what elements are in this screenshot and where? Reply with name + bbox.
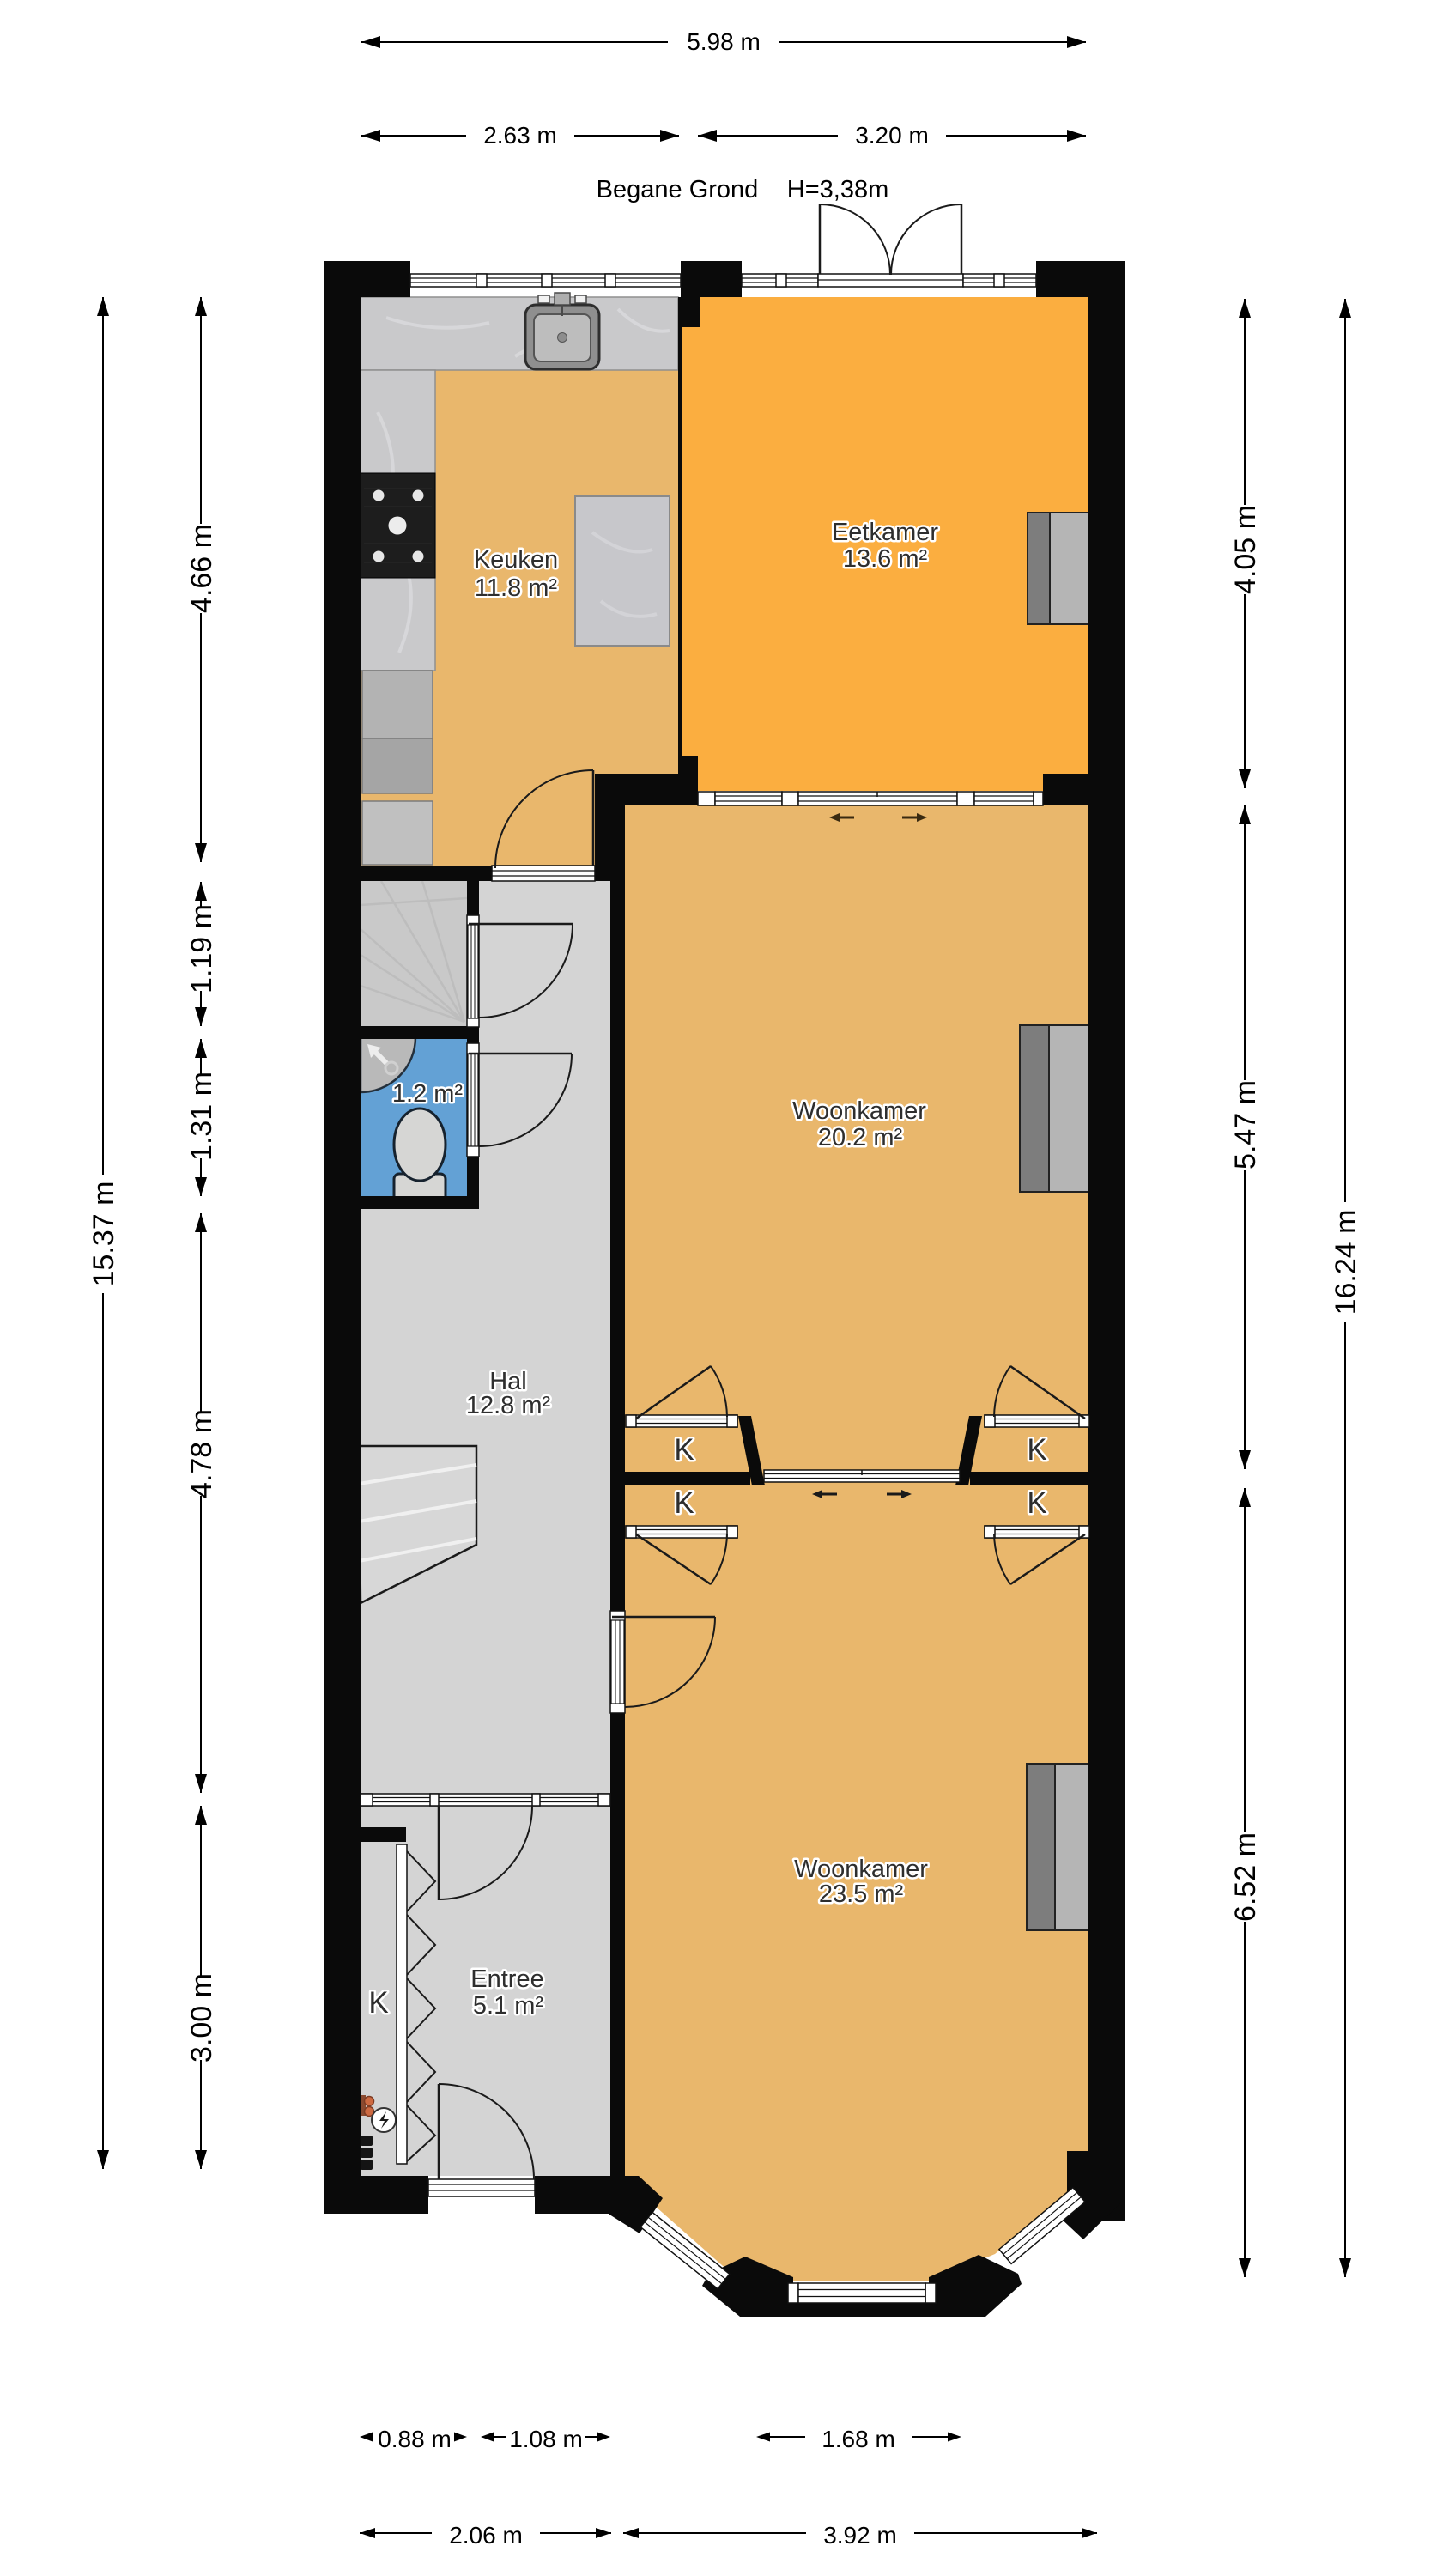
svg-text:3.00 m: 3.00 m: [185, 1973, 218, 2063]
svg-text:20.2 m²: 20.2 m²: [818, 1124, 903, 1151]
svg-text:K: K: [1027, 1433, 1046, 1467]
svg-text:K: K: [1027, 1486, 1046, 1520]
svg-text:Begane Grond: Begane Grond: [597, 176, 759, 204]
svg-text:H=3,38m: H=3,38m: [787, 176, 888, 204]
svg-text:1.19 m: 1.19 m: [185, 904, 218, 993]
svg-text:12.8 m²: 12.8 m²: [466, 1392, 551, 1419]
svg-text:2.63 m: 2.63 m: [483, 122, 557, 149]
svg-text:K: K: [674, 1486, 694, 1520]
svg-text:Eetkamer: Eetkamer: [832, 519, 938, 546]
svg-text:5.98 m: 5.98 m: [687, 28, 761, 55]
svg-text:K: K: [368, 1986, 388, 2020]
svg-text:1.2 m²: 1.2 m²: [392, 1080, 464, 1108]
svg-text:3.92 m: 3.92 m: [823, 2522, 897, 2549]
svg-text:15.37 m: 15.37 m: [88, 1182, 120, 1287]
svg-text:2.06 m: 2.06 m: [449, 2522, 523, 2549]
svg-text:K: K: [674, 1433, 694, 1467]
svg-text:13.6 m²: 13.6 m²: [843, 545, 928, 573]
svg-text:Entree: Entree: [470, 1965, 543, 1993]
svg-text:4.78 m: 4.78 m: [185, 1409, 218, 1498]
svg-text:11.8 m²: 11.8 m²: [475, 574, 558, 602]
svg-text:4.05 m: 4.05 m: [1229, 505, 1262, 594]
svg-text:23.5 m²: 23.5 m²: [819, 1880, 904, 1908]
svg-text:Woonkamer: Woonkamer: [794, 1856, 928, 1883]
svg-text:0.88 m: 0.88 m: [378, 2426, 452, 2452]
svg-text:16.24 m: 16.24 m: [1330, 1210, 1362, 1315]
svg-text:Keuken: Keuken: [474, 546, 558, 574]
svg-text:Woonkamer: Woonkamer: [792, 1097, 926, 1125]
svg-text:3.20 m: 3.20 m: [855, 122, 929, 149]
svg-text:1.31 m: 1.31 m: [185, 1072, 218, 1161]
svg-text:5.1 m²: 5.1 m²: [473, 1992, 544, 2020]
svg-text:4.66 m: 4.66 m: [185, 524, 218, 613]
svg-text:5.47 m: 5.47 m: [1229, 1080, 1262, 1170]
svg-text:6.52 m: 6.52 m: [1229, 1832, 1262, 1922]
svg-text:1.08 m: 1.08 m: [509, 2426, 583, 2452]
svg-text:1.68 m: 1.68 m: [822, 2426, 895, 2452]
